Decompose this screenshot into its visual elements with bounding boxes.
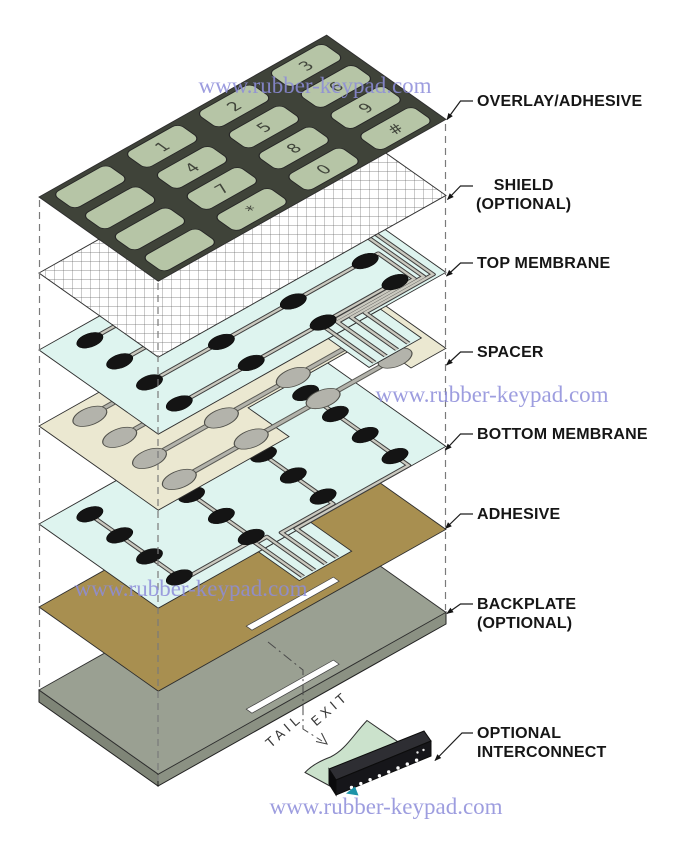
keypad-exploded-diagram: 147*2580369# TAIL EXIT <box>0 0 675 850</box>
watermark-lower-left: www.rubber-keypad.com <box>74 576 307 602</box>
label-bottom-membrane: BOTTOM MEMBRANE <box>477 425 648 444</box>
label-adhesive: ADHESIVE <box>477 505 560 524</box>
leader-adhesive <box>446 514 474 529</box>
label-interconnect: OPTIONAL INTERCONNECT <box>477 724 607 762</box>
watermark-bottom: www.rubber-keypad.com <box>269 794 502 820</box>
label-overlay-adhesive: OVERLAY/ADHESIVE <box>477 92 642 111</box>
leader-interconnect <box>435 733 473 761</box>
leader-overlay <box>447 101 473 120</box>
label-shield: SHIELD (OPTIONAL) <box>476 176 571 214</box>
label-spacer: SPACER <box>477 343 544 362</box>
label-backplate: BACKPLATE (OPTIONAL) <box>477 595 576 633</box>
label-leaders <box>435 101 473 761</box>
leader-spacer <box>447 352 474 365</box>
leader-shield <box>448 186 474 200</box>
leader-backplate <box>447 604 473 614</box>
watermark-middle: www.rubber-keypad.com <box>375 382 608 408</box>
label-top-membrane: TOP MEMBRANE <box>477 254 610 273</box>
leader-top-membrane <box>447 263 474 276</box>
interconnect-assembly <box>305 721 431 796</box>
leader-bottom-membrane <box>446 434 474 450</box>
watermark-top: www.rubber-keypad.com <box>198 73 431 99</box>
